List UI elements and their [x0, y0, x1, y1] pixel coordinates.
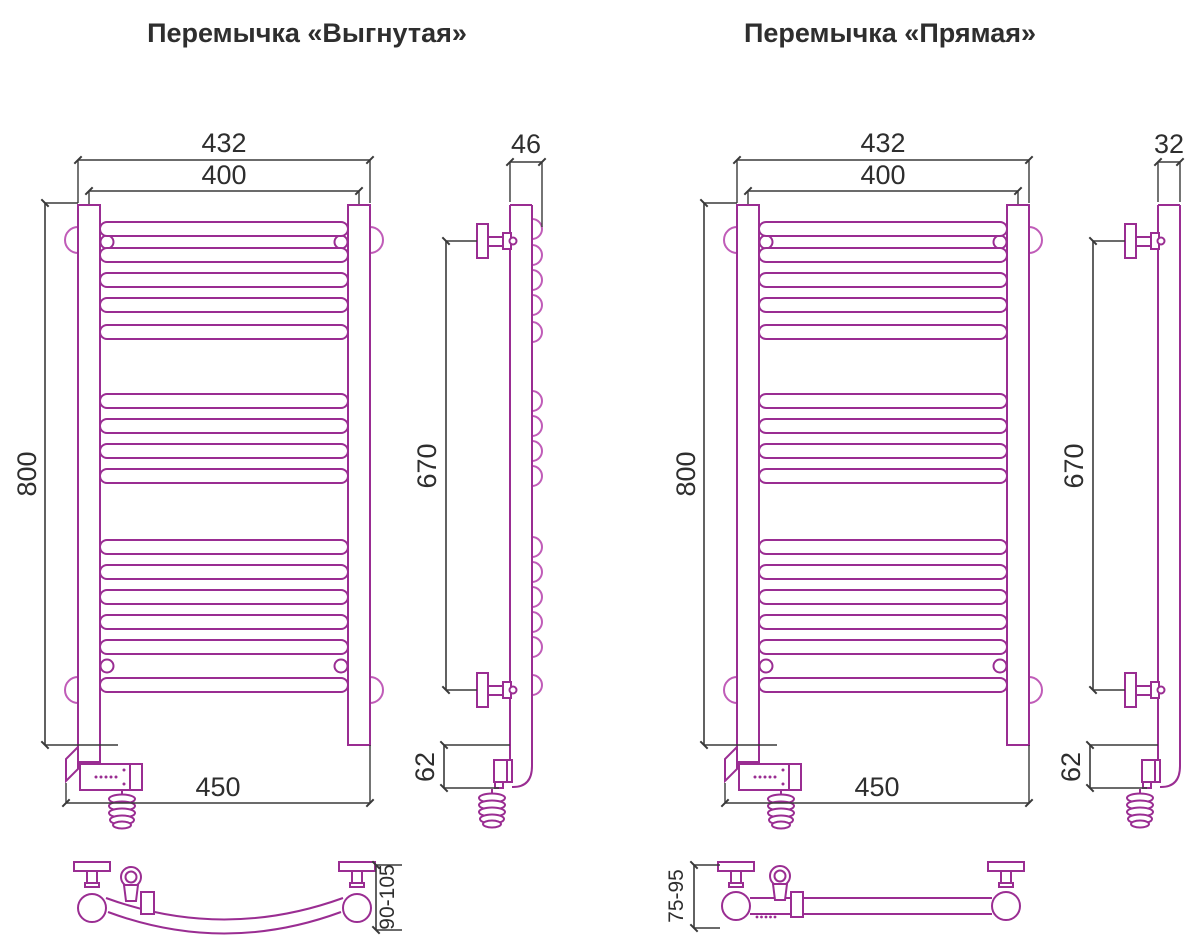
- dim-label-wall-distance: 75-95: [665, 869, 688, 923]
- drawing-sheet: Перемычка «Выгнутая» Перемычка «Прямая»: [0, 0, 1200, 951]
- dim-label-mount-span: 670: [412, 443, 442, 488]
- dim-label-bottom-offset: 62: [1056, 752, 1086, 782]
- dim-label-bottom-offset: 62: [410, 752, 440, 782]
- front-view-curved: [65, 205, 383, 829]
- dim-label-height: 800: [671, 451, 701, 496]
- drawing-title-right: Перемычка «Прямая»: [744, 18, 1036, 48]
- dim-label-depth: 46: [511, 129, 541, 159]
- post-section: [722, 892, 750, 920]
- connector-ring: [770, 866, 790, 900]
- power-cable-coil: [1127, 789, 1153, 828]
- side-view-straight: [1125, 205, 1180, 828]
- curved-rung-bumps: [532, 219, 542, 695]
- front-view-straight: [724, 205, 1042, 829]
- dim-label-overall-width: 432: [860, 128, 905, 158]
- heating-element-box: [66, 747, 142, 790]
- rail-profile-outer: [1160, 205, 1180, 787]
- heating-element-box: [725, 747, 801, 790]
- vent-dots: [756, 916, 777, 919]
- rung-stack: [100, 222, 348, 692]
- top-view-straight: [718, 862, 1024, 920]
- dim-label-base-width: 450: [854, 772, 899, 802]
- collector-arc: [101, 236, 114, 249]
- collector-arc: [994, 660, 1007, 673]
- straight-model-drawing: 432 400 800 450 32 670 62 75-95: [665, 128, 1184, 928]
- dim-label-wall-distance: 90-105: [376, 864, 399, 929]
- side-view-curved: [477, 205, 542, 828]
- post-section: [343, 894, 371, 922]
- rail-right: [1007, 205, 1029, 745]
- wall-bracket-top: [988, 862, 1024, 887]
- rail-profile-outer: [512, 205, 532, 787]
- dim-label-mount-span: 670: [1059, 443, 1089, 488]
- collector-arc: [994, 236, 1007, 249]
- dim-label-base-width: 450: [195, 772, 240, 802]
- collector-arc: [101, 660, 114, 673]
- rail-left: [78, 205, 100, 762]
- wall-bracket-top: [339, 862, 375, 887]
- collector-arc: [335, 660, 348, 673]
- post-section: [78, 894, 106, 922]
- dim-label-depth: 32: [1154, 129, 1184, 159]
- power-cable-coil: [109, 790, 135, 829]
- rail-left: [737, 205, 759, 762]
- cable-clamp: [141, 892, 154, 914]
- rail-right: [348, 205, 370, 745]
- collector-arc: [760, 660, 773, 673]
- curved-model-drawing: 432 400 800 450 46 670 62 90-105: [12, 128, 542, 934]
- curved-crossbar-inner: [108, 912, 341, 934]
- dim-label-axis-width: 400: [860, 160, 905, 190]
- top-view-curved: [74, 862, 375, 934]
- collector-arc: [760, 236, 773, 249]
- wall-bracket-top: [718, 862, 754, 887]
- collector-arc: [335, 236, 348, 249]
- technical-drawing: Перемычка «Выгнутая» Перемычка «Прямая»: [0, 0, 1200, 951]
- drawing-title-left: Перемычка «Выгнутая»: [147, 18, 467, 48]
- heating-element-side: [1142, 760, 1160, 788]
- power-cable-coil: [768, 790, 794, 829]
- dim-label-overall-width: 432: [201, 128, 246, 158]
- heating-element-side: [494, 760, 512, 788]
- wall-bracket-top: [74, 862, 110, 887]
- power-cable-coil: [479, 789, 505, 828]
- post-section: [992, 892, 1020, 920]
- cable-clamp: [791, 892, 803, 917]
- dim-label-height: 800: [12, 451, 42, 496]
- dim-label-axis-width: 400: [201, 160, 246, 190]
- rung-stack: [759, 222, 1007, 692]
- connector-ring: [121, 867, 141, 901]
